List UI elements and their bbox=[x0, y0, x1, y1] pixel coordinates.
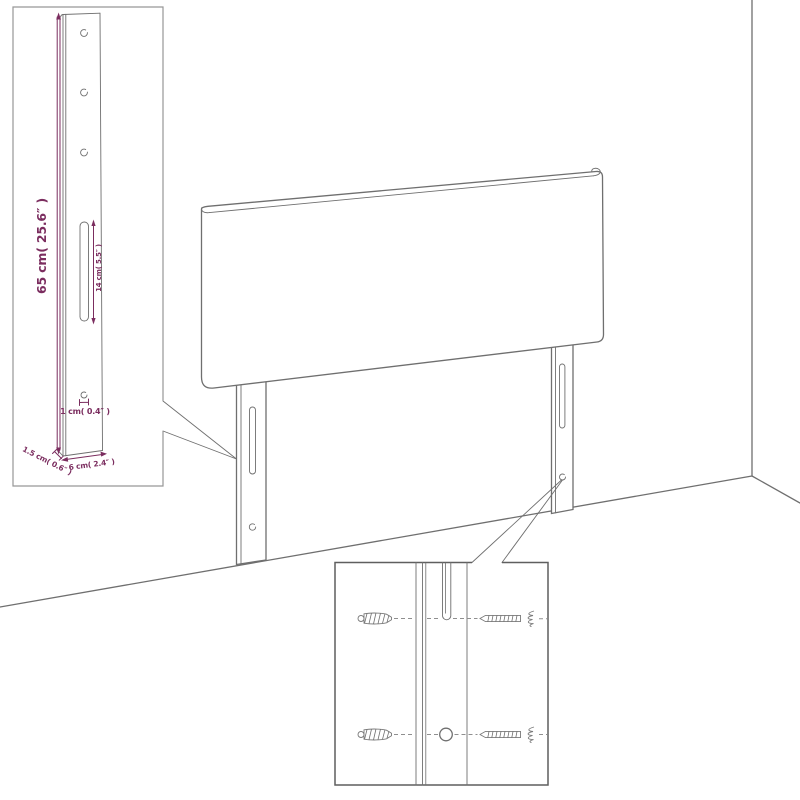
leg-dimensions-inset: 65 cm( 25.6″ ) 14 cm( 5.5″ ) 1 cm( 0.4″ … bbox=[13, 7, 163, 486]
mounting-inset-border bbox=[335, 563, 548, 786]
screw-head-scribble bbox=[528, 611, 534, 627]
leg-hole-middle bbox=[81, 89, 88, 96]
dim-width: 6 cm( 2.4″ ) bbox=[61, 452, 115, 472]
screw-head-scribble bbox=[528, 727, 534, 743]
floor-wall-line-right bbox=[752, 476, 800, 503]
mounting-slot bbox=[443, 563, 451, 620]
leg-hole-top bbox=[81, 30, 88, 37]
mounting-detail-inset bbox=[335, 563, 548, 786]
mounting-hole bbox=[440, 728, 453, 741]
headboard bbox=[202, 168, 604, 388]
mounting-screw-top bbox=[480, 611, 534, 627]
dim-hole-label: 1 cm( 0.4″ ) bbox=[60, 407, 110, 416]
headboard-front-face bbox=[202, 171, 604, 388]
mounting-leg-section bbox=[416, 563, 467, 786]
dim-width-label: 6 cm( 2.4″ ) bbox=[68, 457, 115, 472]
leg-hole-bottom bbox=[81, 149, 88, 156]
left-callout-lines bbox=[163, 401, 237, 459]
floor-wall-line-left bbox=[0, 476, 752, 607]
diagram-page: 65 cm( 25.6″ ) 14 cm( 5.5″ ) 1 cm( 0.4″ … bbox=[0, 0, 800, 800]
headboard-left-leg bbox=[237, 381, 267, 565]
dim-height-label: 65 cm( 25.6″ ) bbox=[34, 198, 49, 294]
dim-height: 65 cm( 25.6″ ) bbox=[34, 13, 61, 455]
leg-slot-detail bbox=[80, 222, 89, 321]
mounting-screw-bottom bbox=[480, 727, 534, 743]
headboard-right-leg bbox=[552, 345, 574, 514]
leg-small-hole bbox=[81, 392, 87, 398]
anchor-screw-top bbox=[358, 613, 392, 624]
right-callout-lines bbox=[472, 480, 563, 563]
dim-slot-label: 14 cm( 5.5″ ) bbox=[95, 244, 103, 292]
leg-detail-drawing bbox=[57, 13, 103, 456]
anchor-screw-bottom bbox=[358, 729, 392, 740]
assembly-diagram: 65 cm( 25.6″ ) 14 cm( 5.5″ ) 1 cm( 0.4″ … bbox=[0, 0, 800, 800]
alignment-dashes bbox=[394, 619, 547, 735]
